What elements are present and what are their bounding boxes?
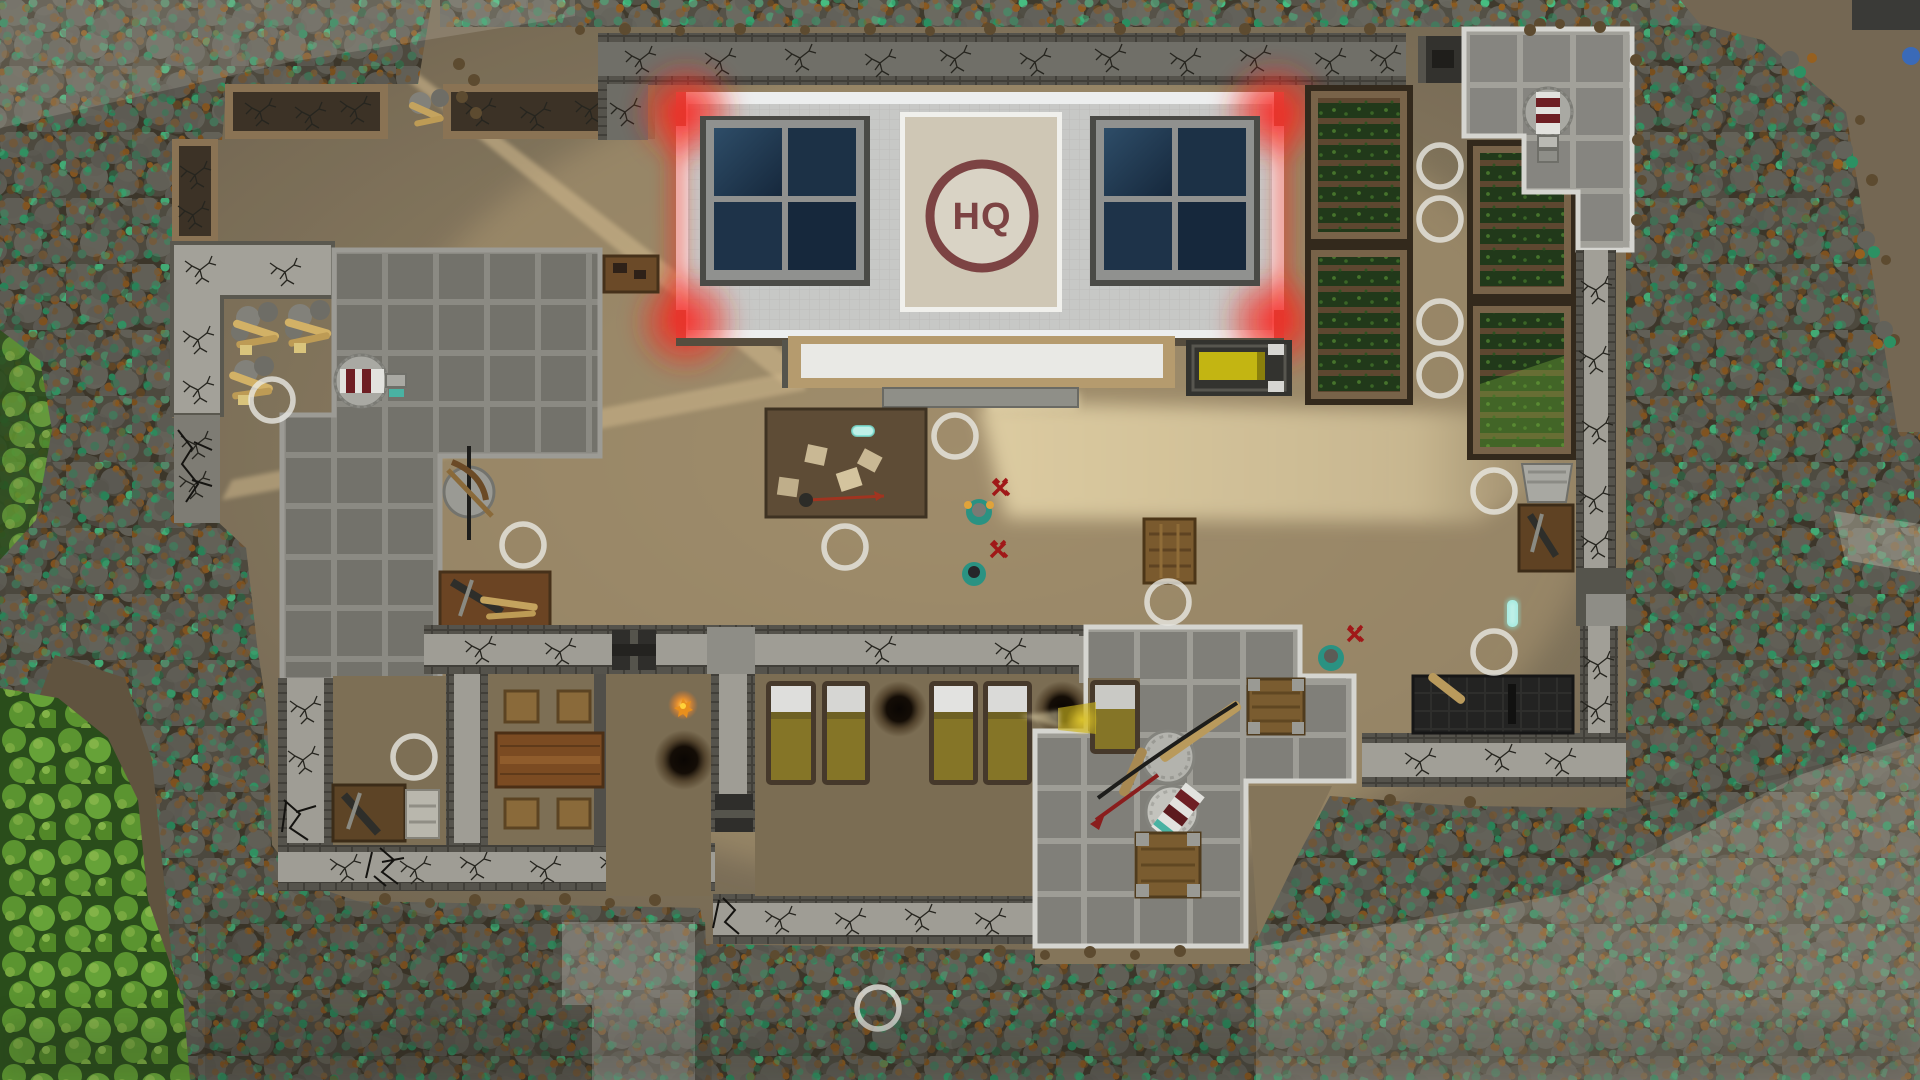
svg-text:HQ: HQ bbox=[953, 196, 1012, 238]
